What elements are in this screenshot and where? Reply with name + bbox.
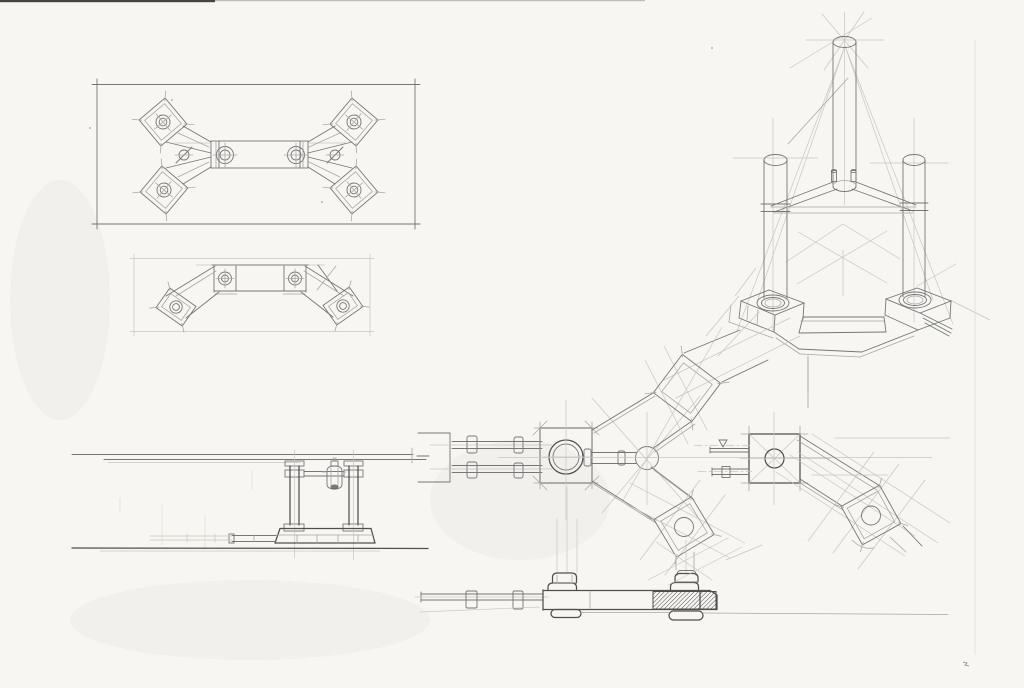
drawing-sheet bbox=[0, 0, 1024, 688]
pencil-drawing-canvas bbox=[0, 0, 1024, 688]
hatched-section-block bbox=[653, 592, 716, 610]
scan-edge-artifact bbox=[0, 0, 215, 2]
paper-background bbox=[0, 0, 1024, 688]
